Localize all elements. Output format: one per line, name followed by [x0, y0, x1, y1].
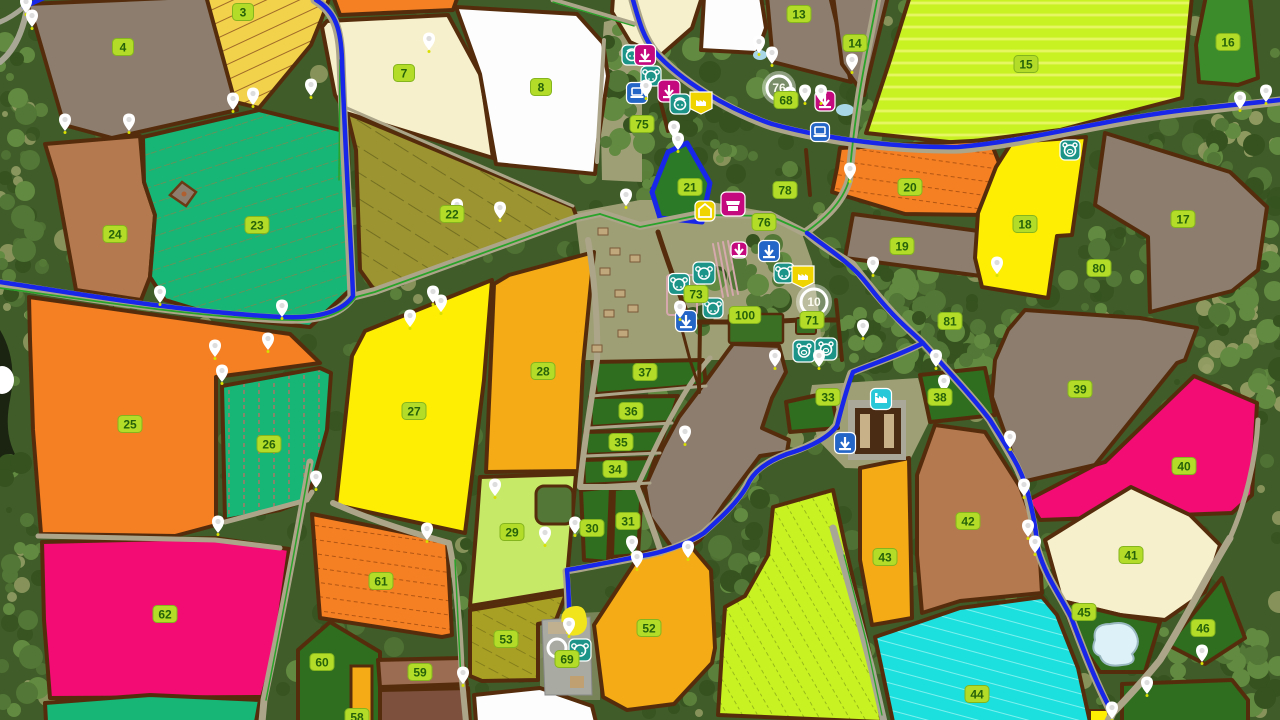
- svg-text:44: 44: [970, 688, 984, 702]
- svg-text:100: 100: [735, 309, 755, 323]
- svg-text:75: 75: [635, 118, 649, 132]
- svg-text:61: 61: [374, 575, 388, 589]
- svg-text:7: 7: [401, 67, 408, 81]
- svg-text:81: 81: [943, 315, 957, 329]
- svg-text:13: 13: [792, 8, 806, 22]
- svg-text:69: 69: [560, 653, 574, 667]
- svg-text:37: 37: [638, 366, 652, 380]
- svg-text:60: 60: [315, 656, 329, 670]
- svg-text:43: 43: [878, 551, 892, 565]
- svg-text:25: 25: [123, 418, 137, 432]
- svg-text:3: 3: [240, 6, 247, 20]
- svg-text:68: 68: [779, 94, 793, 108]
- svg-text:23: 23: [250, 219, 264, 233]
- svg-text:39: 39: [1073, 383, 1087, 397]
- svg-text:21: 21: [683, 181, 697, 195]
- svg-text:29: 29: [505, 526, 519, 540]
- svg-text:10: 10: [807, 295, 821, 309]
- svg-text:14: 14: [848, 37, 862, 51]
- svg-text:30: 30: [585, 522, 599, 536]
- svg-text:16: 16: [1221, 36, 1235, 50]
- svg-text:15: 15: [1019, 58, 1033, 72]
- svg-text:27: 27: [407, 405, 421, 419]
- svg-text:59: 59: [413, 666, 427, 680]
- svg-text:35: 35: [614, 436, 628, 450]
- svg-text:8: 8: [538, 81, 545, 95]
- svg-text:4: 4: [120, 41, 127, 55]
- svg-text:18: 18: [1018, 218, 1032, 232]
- svg-text:41: 41: [1124, 549, 1138, 563]
- svg-text:80: 80: [1092, 262, 1106, 276]
- svg-text:33: 33: [821, 391, 835, 405]
- svg-text:20: 20: [903, 181, 917, 195]
- svg-text:34: 34: [608, 463, 622, 477]
- svg-text:53: 53: [499, 633, 513, 647]
- svg-text:24: 24: [108, 228, 122, 242]
- svg-text:36: 36: [624, 405, 638, 419]
- svg-text:31: 31: [621, 515, 635, 529]
- svg-text:17: 17: [1176, 213, 1190, 227]
- svg-text:73: 73: [689, 288, 703, 302]
- svg-text:58: 58: [350, 711, 364, 720]
- svg-text:62: 62: [158, 608, 172, 622]
- svg-text:71: 71: [805, 314, 819, 328]
- svg-text:78: 78: [778, 184, 792, 198]
- svg-text:52: 52: [642, 622, 656, 636]
- svg-text:76: 76: [757, 216, 771, 230]
- svg-text:26: 26: [262, 438, 276, 452]
- svg-text:45: 45: [1077, 606, 1091, 620]
- svg-text:19: 19: [895, 240, 909, 254]
- svg-text:38: 38: [933, 391, 947, 405]
- svg-text:22: 22: [445, 208, 459, 222]
- svg-text:46: 46: [1196, 622, 1210, 636]
- svg-text:42: 42: [961, 515, 975, 529]
- svg-text:40: 40: [1177, 460, 1191, 474]
- svg-text:28: 28: [536, 365, 550, 379]
